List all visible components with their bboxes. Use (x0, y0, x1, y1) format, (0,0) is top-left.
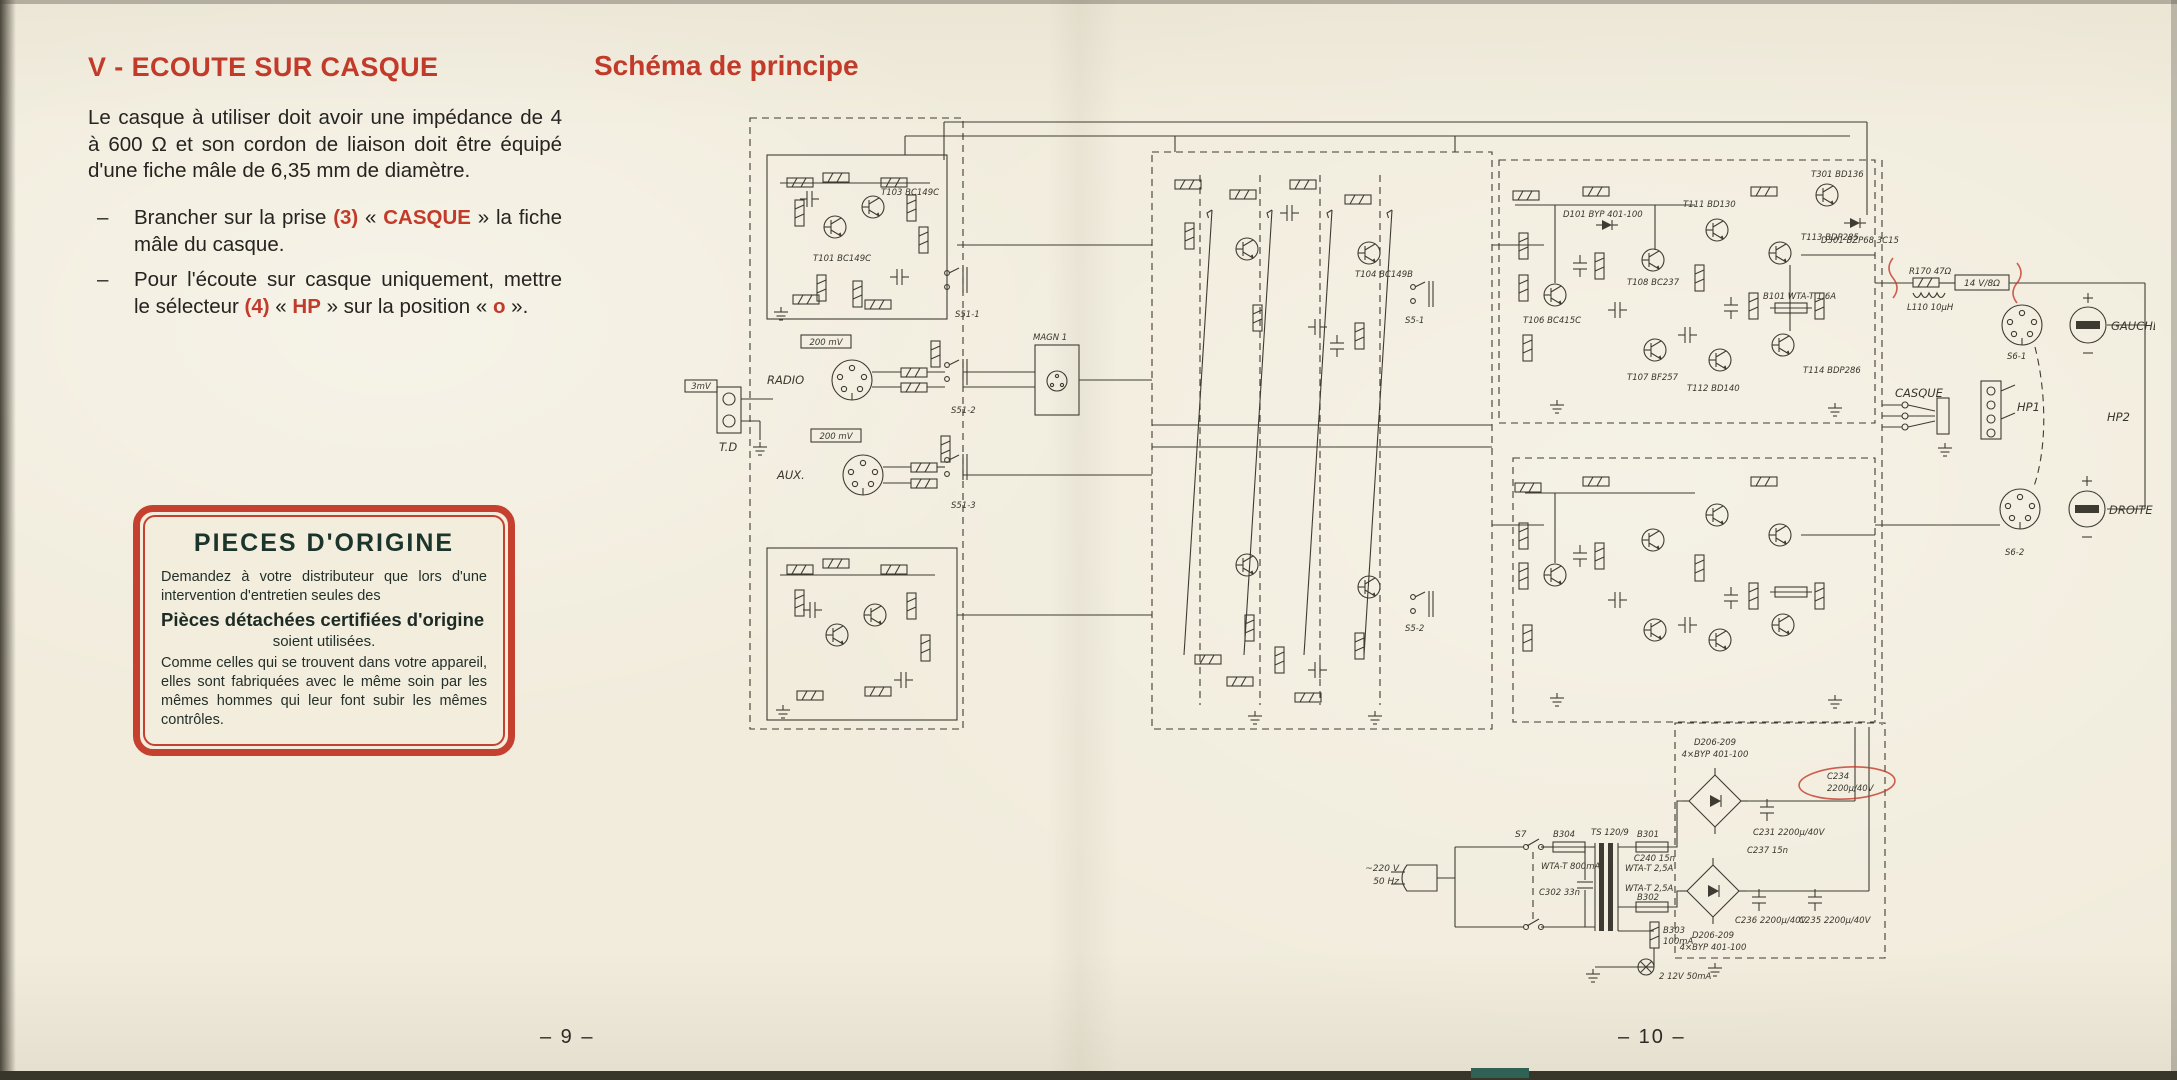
schematic-label-t112: T112 BD140 (1687, 384, 1740, 394)
schematic-label-l110: L110 10µH (1907, 303, 1954, 313)
schematic-label-d206-top: D206-209 (1694, 738, 1736, 748)
schematic-label-s6-2: S6-2 (2005, 548, 2024, 558)
schematic-label-t103: T103 BC149C (881, 188, 939, 198)
schematic-label-lamp: 2 12V 50mA (1659, 972, 1712, 982)
schematic-label-magn: MAGN 1 (1033, 333, 1067, 343)
quote-open: « (358, 206, 383, 229)
schematic-label-s6-1: S6-1 (2007, 352, 2026, 362)
schematic-label-hp2: HP2 (2107, 410, 2130, 424)
schematic-label-s5-2: S5-2 (1405, 624, 1424, 634)
schematic-label-t101: T101 BC149C (813, 254, 871, 264)
bullet-text: Brancher sur la prise (3) « CASQUE » la … (134, 205, 562, 258)
bullet-item-casque: – Brancher sur la prise (3) « CASQUE » l… (88, 205, 562, 258)
schematic-label-c237: C237 15n (1747, 846, 1788, 856)
origin-box-paragraph-1: Demandez à votre distributeur que lors d… (161, 568, 487, 606)
schematic-label-c234-val: 2200µ/40V (1827, 784, 1875, 794)
schematic-label-s51-3: S51-3 (951, 501, 976, 511)
page-number-right: – 10 – (1618, 1026, 1686, 1049)
schematic-label-c236: C236 2200µ/40V (1735, 916, 1808, 926)
schematic-label-transformer: TS 120/9 (1591, 828, 1629, 838)
schematic-label-d206-bottom: D206-209 (1692, 931, 1734, 941)
quote-close: » (321, 295, 344, 318)
bullet-item-hp: – Pour l'écoute sur casque uniquement, m… (88, 267, 562, 320)
schematic-label-s51-1: S51-1 (955, 310, 980, 320)
ref-4: (4) (245, 295, 270, 318)
power-supply-section: ~220 V 50 Hz S7 B304 WTA-T 800mA C302 33… (1365, 723, 1885, 982)
left-page-text-column: V - ECOUTE SUR CASQUE Le casque à utilis… (88, 52, 562, 320)
schematic-label-radio: RADIO (767, 373, 804, 387)
schematic-label-c240: C240 15n (1634, 854, 1675, 864)
schematic-label-c231: C231 2200µ/40V (1753, 828, 1826, 838)
schematic-label-aux-level: 200 mV (819, 432, 853, 442)
schematic-label-radio-level: 200 mV (809, 338, 843, 348)
schematic-label-droite: DROITE (2109, 503, 2153, 517)
schematic-label-c302: C302 33n (1539, 888, 1580, 898)
pieces-origine-inner-border: PIECES D'ORIGINE Demandez à votre distri… (143, 515, 505, 746)
schematic-label-s7: S7 (1515, 830, 1527, 840)
red-pen-annotations (1798, 258, 2021, 801)
tone-control-section: T104 BC149B S5-1 S5-2 (1152, 152, 1492, 729)
schematic-label-aux: AUX. (776, 468, 805, 482)
quote-close: » (471, 206, 496, 229)
schematic-label-t107: T107 BF257 (1627, 373, 1679, 383)
schematic-label-s51-2: S51-2 (951, 406, 976, 416)
bullet1-pre: Brancher sur la prise (134, 206, 333, 229)
origin-box-paragraph-3: Comme celles qui se trouvent dans votre … (161, 654, 487, 730)
schematic-label-d206-top-type: 4×BYP 401-100 (1682, 750, 1749, 760)
bullet2-end: ». (505, 295, 528, 318)
schematic-label-d101: D101 BYP 401-100 (1563, 210, 1643, 220)
schematic-label-t111: T111 BD130 (1683, 200, 1736, 210)
power-amp-right-channel (1492, 458, 1875, 722)
schematic-label-c235: C235 2200µ/40V (1799, 916, 1872, 926)
schematic-label-t114: T114 BDP286 (1803, 366, 1861, 376)
schematic-label-t108: T108 BC237 (1627, 278, 1680, 288)
scan-edge-top (0, 0, 2177, 4)
output-section: R170 47Ω L110 10µH 14 V/8Ω S6-1 GAUCHE C… (1875, 160, 2155, 725)
schematic-label-d301: D301 BZP68 3C15 (1821, 236, 1899, 246)
scan-edge-left (0, 0, 16, 1080)
quote-open: « (270, 295, 293, 318)
schematic-label-b304: B304 (1553, 830, 1575, 840)
schematic-label-b303: B303 (1663, 926, 1685, 936)
schematic-label-c234: C234 (1827, 772, 1849, 782)
bullet-text: Pour l'écoute sur casque uniquement, met… (134, 267, 562, 320)
position-o-accent: o (493, 295, 506, 318)
schematic-label-b301: B301 (1637, 830, 1659, 840)
hp-accent: HP (292, 295, 320, 318)
origin-box-title: PIECES D'ORIGINE (161, 529, 487, 558)
scan-edge-right (2171, 0, 2177, 1080)
scan-edge-bottom (0, 1071, 2177, 1080)
bullet-dash: – (88, 205, 134, 258)
schematic-label-hp1: HP1 (2017, 400, 2040, 414)
schematic-label-t106: T106 BC415C (1523, 316, 1581, 326)
schematic-label-b301-val: WTA-T 2,5A (1625, 864, 1673, 874)
schematic-label-b304-val: WTA-T 800mA (1541, 862, 1600, 872)
section-heading: V - ECOUTE SUR CASQUE (88, 52, 562, 83)
schematic-label-t301: T301 BD136 (1811, 170, 1864, 180)
schematic-label-mains-frequency: 50 Hz (1373, 877, 1399, 887)
schematic-label-t104: T104 BC149B (1355, 270, 1413, 280)
schematic-label-casque: CASQUE (1895, 386, 1944, 400)
schematic-heading: Schéma de principe (594, 50, 859, 82)
page-number-left: – 9 – (540, 1026, 594, 1049)
schematic-label-d206-bottom-type: 4×BYP 401-100 (1680, 943, 1747, 953)
bullet2-mid: sur la position « (344, 295, 493, 318)
intro-paragraph: Le casque à utiliser doit avoir une impé… (88, 105, 562, 185)
origin-box-highlight: Pièces détachées certifiées d'origine (161, 608, 487, 631)
schematic-label-r170: R170 47Ω (1909, 267, 1952, 277)
origin-box-paragraph-2: soient utilisées. (161, 631, 487, 652)
pieces-origine-box: PIECES D'ORIGINE Demandez à votre distri… (133, 505, 515, 756)
schematic-label-b101: B101 WTA-T 1,6A (1763, 292, 1836, 302)
bullet-dash: – (88, 267, 134, 320)
casque-accent: CASQUE (383, 206, 471, 229)
preamp-stage-bottom (776, 559, 935, 718)
schematic-label-output-level: 14 V/8Ω (1964, 279, 2000, 289)
ref-3: (3) (333, 206, 358, 229)
schematic-label-s5-1: S5-1 (1405, 316, 1424, 326)
input-section: 3mV T.D RADIO 200 mV S51-2 AUX. 200 mV (685, 118, 1152, 729)
power-amp-left-channel: T106 BC415C T108 BC237 D101 BYP 401-100 … (1492, 160, 1899, 423)
preamp-stage-top: T101 BC149C T103 BC149C (774, 173, 939, 320)
schematic-label-td-level: 3mV (691, 382, 712, 392)
schematic-label-td: T.D (719, 440, 737, 454)
schematic-label-gauche: GAUCHE (2111, 319, 2155, 333)
scan-edge-color-mark (1471, 1068, 1529, 1078)
schematic-drawing: 3mV T.D RADIO 200 mV S51-2 AUX. 200 mV (655, 95, 2155, 1015)
